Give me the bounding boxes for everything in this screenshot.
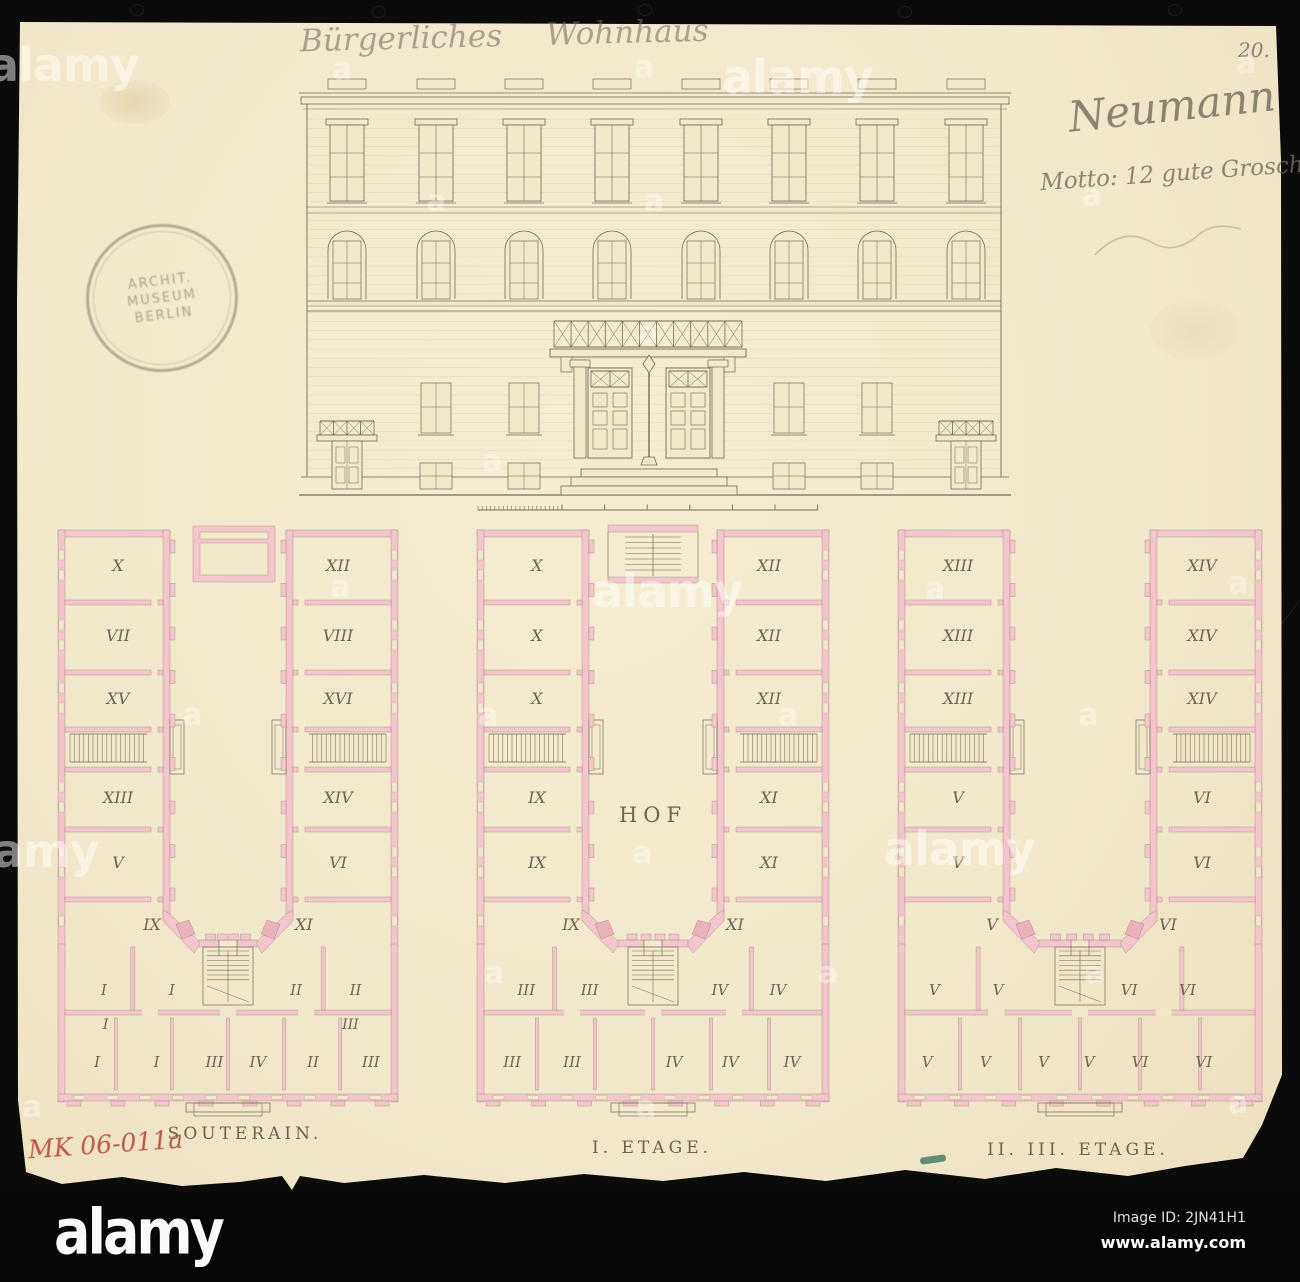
room-label: II — [289, 981, 303, 999]
pencil-squiggle — [1090, 215, 1250, 275]
room-label: VI — [1195, 1053, 1213, 1071]
room-label: I — [100, 981, 108, 999]
plan-caption-souterrain: SOUTERAIN. — [168, 1124, 323, 1144]
scanned-drawing-photo: Bürgerliches Wohnhaus 20. Neumann Motto:… — [0, 0, 1300, 1282]
left-wing — [58, 530, 201, 953]
stamp-line: ARCHIT. — [127, 269, 193, 294]
room-label: V — [952, 853, 965, 872]
room-label: XV — [105, 689, 131, 708]
room-label: XII — [324, 556, 351, 575]
room-label: X — [529, 556, 543, 575]
room-label: V — [1038, 1053, 1051, 1071]
room-labels: XVIIXVXIIIVIXXIIVIIIXVIXIVVIXIIIIIIIIIII… — [93, 556, 381, 1071]
room-label: VI — [329, 853, 348, 872]
alamy-logo: alamy — [54, 1196, 222, 1268]
street-front-block — [898, 934, 1262, 1116]
left-wing — [898, 530, 1041, 953]
room-label: VI — [1121, 981, 1139, 999]
room-label: X — [529, 626, 543, 645]
stock-photo-footer: alamy Image ID: 2JN41H1 www.alamy.com — [0, 1192, 1300, 1282]
room-labels: XIIIXIIIXIIIVVVXIVXIVXIVVIVIVIVVVIVIVVVV… — [922, 556, 1218, 1071]
room-label: VII — [106, 626, 131, 645]
room-label: XIII — [941, 556, 974, 575]
room-label: XIV — [321, 788, 354, 807]
floor-plan-second-third-floor: XIIIXIIIXIIIVVVXIVXIVXIVVIVIVIVVVIVIVVVV… — [898, 524, 1262, 1124]
room-label: X — [110, 556, 124, 575]
room-label: II — [349, 981, 363, 999]
room-label: IV — [783, 1053, 803, 1071]
room-label: XI — [758, 788, 778, 807]
room-label: XII — [755, 556, 782, 575]
room-label: VI — [1132, 1053, 1150, 1071]
room-label: V — [986, 915, 999, 934]
room-label: I — [153, 1053, 161, 1071]
elevation-group — [299, 79, 1011, 495]
street-front-block — [477, 934, 829, 1116]
room-label: III — [361, 1053, 381, 1071]
room-label: V — [929, 981, 942, 999]
room-label: I — [93, 1053, 101, 1071]
room-label: VI — [1193, 853, 1212, 872]
room-label: XIII — [101, 788, 134, 807]
entrance-steps — [608, 525, 698, 583]
room-label: XVI — [321, 689, 353, 708]
room-label: IV — [769, 981, 789, 999]
plan-caption-first-floor: I. ETAGE. — [592, 1138, 712, 1158]
room-label: III — [205, 1053, 225, 1071]
room-label: IV — [710, 981, 730, 999]
room-label: IX — [142, 915, 161, 934]
room-label: IV — [665, 1053, 685, 1071]
room-label: VI — [1159, 915, 1178, 934]
room-label: XIV — [1185, 626, 1218, 645]
mat-hole — [898, 6, 912, 18]
room-label: III — [341, 1017, 359, 1033]
plan-caption-second-third-floor: II. III. ETAGE. — [987, 1140, 1169, 1160]
room-label: IX — [527, 853, 546, 872]
room-label: XI — [724, 915, 744, 934]
floor-plan-souterrain: XVIIXVXIIIVIXXIIVIIIXVIXIVVIXIIIIIIIIIII… — [58, 524, 398, 1124]
website-text: www.alamy.com — [1101, 1233, 1246, 1252]
right-wing — [1119, 530, 1262, 953]
room-label: III — [580, 981, 600, 999]
room-label: XII — [755, 689, 782, 708]
room-label: V — [980, 1053, 993, 1071]
room-label: XIII — [941, 626, 974, 645]
room-label: II — [306, 1053, 320, 1071]
room-label: VI — [1179, 981, 1197, 999]
courtyard-label: HOF — [619, 803, 687, 827]
mat-hole — [372, 6, 386, 18]
right-wing — [255, 530, 398, 953]
room-label: III — [502, 1053, 522, 1071]
stamp-line: BERLIN — [134, 303, 195, 327]
room-label: XII — [755, 626, 782, 645]
page-number: 20. — [1238, 38, 1270, 62]
room-label: XIV — [1185, 556, 1218, 575]
room-label: IV — [721, 1053, 741, 1071]
mat-hole — [130, 4, 144, 16]
room-label: I — [102, 1017, 109, 1033]
stamp-line: MUSEUM — [126, 285, 197, 310]
facade-elevation-drawing — [299, 73, 1011, 505]
scale-bar — [478, 502, 818, 518]
room-label: XI — [758, 853, 778, 872]
room-label: III — [516, 981, 536, 999]
room-label: V — [112, 853, 125, 872]
room-label: III — [562, 1053, 582, 1071]
room-label: IX — [561, 915, 580, 934]
image-id-text: Image ID: 2JN41H1 — [1101, 1210, 1246, 1226]
room-label: IX — [527, 788, 546, 807]
room-label: I — [168, 981, 176, 999]
room-label: VIII — [323, 626, 354, 645]
left-wing — [477, 530, 620, 953]
room-label: V — [1084, 1053, 1097, 1071]
room-label: XIII — [941, 689, 974, 708]
room-label: V — [993, 981, 1006, 999]
room-label: XI — [293, 915, 313, 934]
room-label: V — [922, 1053, 935, 1071]
right-wing — [686, 530, 829, 953]
mat-hole — [1168, 4, 1182, 16]
room-label: VI — [1193, 788, 1212, 807]
room-label: IV — [249, 1053, 269, 1071]
floor-plan-first-floor: XXXIXIXIXXIIXIIXIIXIXIXIIIIIIIIVIVIIIIII… — [477, 524, 829, 1124]
room-label: XIV — [1185, 689, 1218, 708]
room-label: X — [529, 689, 543, 708]
room-label: V — [952, 788, 965, 807]
